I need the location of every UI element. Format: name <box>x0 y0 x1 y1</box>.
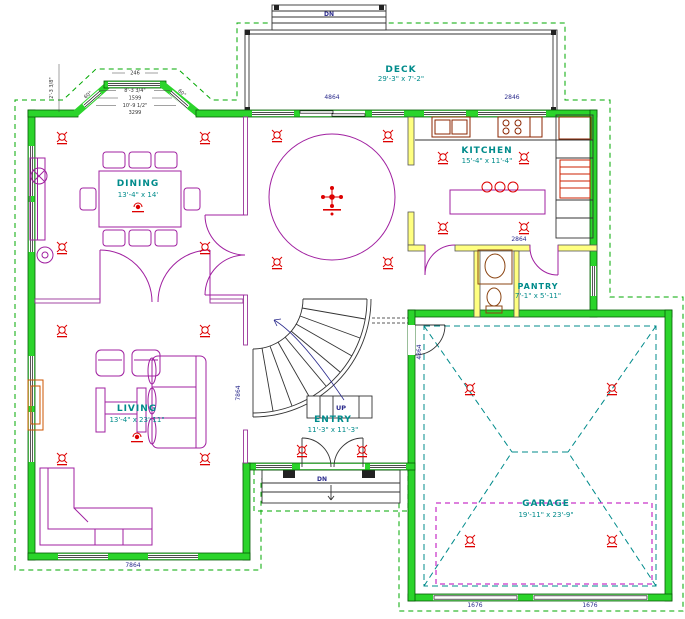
window <box>58 554 108 559</box>
deck-dims: 29'-3" x 7'-2" <box>378 75 424 83</box>
curved-staircase: UP <box>253 299 408 418</box>
sectional-sofa <box>40 468 152 545</box>
kitchen-dims: 15'-4" x 11'-4" <box>462 157 513 165</box>
dining-living-opening <box>100 250 210 302</box>
refrigerator <box>559 117 591 139</box>
porch-dn-label: DN <box>317 476 327 483</box>
ceiling-light-icon <box>438 152 448 164</box>
ceiling-light-icon <box>383 130 393 142</box>
ceiling-light-icon <box>57 132 67 144</box>
deck-door-size: 4864 <box>324 94 339 101</box>
dining-label: DINING <box>117 179 160 189</box>
dining-table <box>80 152 200 246</box>
front-entry-door <box>300 438 365 469</box>
pantry-dims: 7'-1" x 5'-11" <box>515 292 561 300</box>
ceiling-light-icon <box>519 222 529 234</box>
ceiling-light-icon <box>383 257 393 269</box>
living-dims: 13'-4" x 23'-11" <box>109 416 164 424</box>
wall-oven <box>560 160 590 198</box>
living-label: LIVING <box>117 404 157 414</box>
entry-label: ENTRY <box>314 415 352 425</box>
ceiling-light-icon <box>465 383 475 395</box>
kitchen-label: KITCHEN <box>461 146 512 156</box>
deck-dn-label: DN <box>324 11 334 18</box>
stairs-up-label: UP <box>336 404 346 412</box>
pantry-top-dim: 2864 <box>511 236 526 243</box>
window <box>252 111 294 116</box>
chandelier-icon <box>321 186 343 216</box>
sliding-door <box>300 111 365 116</box>
front-porch <box>262 467 400 503</box>
ceiling-light-icon <box>200 325 210 337</box>
pantry-label: PANTRY <box>518 282 559 291</box>
bay-dim-2: 8'-3 3/4" <box>124 88 145 94</box>
toilet <box>486 288 502 313</box>
window <box>478 111 546 116</box>
ceiling-light-icon <box>519 152 529 164</box>
garage-door <box>433 595 518 600</box>
plant <box>37 247 53 263</box>
window <box>591 266 596 296</box>
bay-dim-3: 1599 <box>129 96 142 102</box>
deck-label: DECK <box>385 65 416 75</box>
window <box>372 111 404 116</box>
ceiling-light-icon <box>200 132 210 144</box>
hall-left-dim: 7864 <box>235 385 242 400</box>
powder-door <box>425 245 455 275</box>
ceiling-light-icon <box>465 535 475 547</box>
window <box>148 554 198 559</box>
fan-icon <box>132 203 144 212</box>
kitchen-island <box>450 182 545 214</box>
ceiling-light-icon <box>357 445 367 457</box>
dining-dims: 13'-4" x 14' <box>118 191 159 199</box>
ceiling-light-icon <box>438 222 448 234</box>
ceiling-light-icon <box>607 535 617 547</box>
floorplan-canvas: UP <box>0 0 685 619</box>
window <box>256 464 292 469</box>
window <box>424 111 466 116</box>
sofa <box>148 356 206 448</box>
entry-dims: 11'-3" x 11'-3" <box>308 426 359 434</box>
ceiling-light-icon <box>272 257 282 269</box>
bay-dim-1: 246 <box>130 71 140 77</box>
bay-dim-4: 10'-9 1/2" <box>123 103 148 109</box>
range <box>498 117 542 137</box>
bay-window <box>108 82 160 87</box>
bay-dim-5: 3299 <box>129 110 142 116</box>
ceiling-light-icon <box>57 325 67 337</box>
windows <box>29 82 648 600</box>
hall-right-dim: 4864 <box>416 344 423 359</box>
kitchen-sink <box>432 117 470 137</box>
dimension-labels: 4864 2846 7864 4864 2864 1676 1676 7864 <box>125 94 597 609</box>
kitchen-window-size: 2846 <box>504 94 519 101</box>
ceiling-light-icon <box>200 453 210 465</box>
window <box>370 464 406 469</box>
armchair <box>96 350 124 376</box>
garage-label: GARAGE <box>522 499 570 509</box>
ceiling-light-icon <box>272 130 282 142</box>
garage-roof-lines <box>424 326 656 586</box>
pantry-door <box>530 245 558 275</box>
ceiling-light-icon <box>200 242 210 254</box>
hall-dining-opening <box>205 215 245 295</box>
fan-icon <box>131 433 143 442</box>
ceiling-light-icon <box>57 453 67 465</box>
garage-door-1-size: 1676 <box>467 602 482 609</box>
vanity-sink <box>478 250 512 284</box>
ceiling-light-icon <box>57 242 67 254</box>
garage-door <box>533 595 648 600</box>
garage-dims: 19'-11" x 23'-9" <box>518 511 573 519</box>
garage-door-2-size: 1676 <box>582 602 597 609</box>
living-bottom-dim: 7864 <box>125 562 140 569</box>
bay-side-dim: 2'-3 3/8" <box>49 77 55 98</box>
